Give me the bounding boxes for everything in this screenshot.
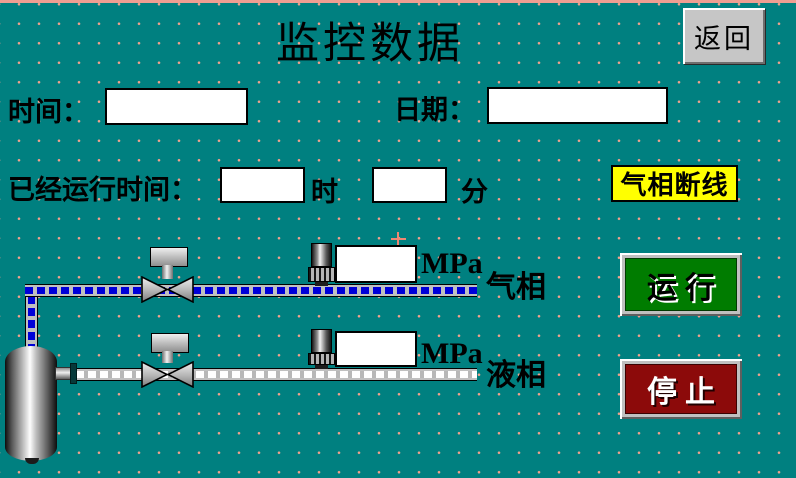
time-value-field[interactable] [105,88,248,125]
liquid-valve-actuator-icon [151,333,189,353]
top-border-line [0,0,796,3]
stop-button[interactable]: 停止 [620,359,742,419]
run-button-face: 运行 [625,258,737,311]
liquid-pressure-unit: MPa [421,337,483,371]
time-label: 时间： [8,90,89,129]
runtime-minutes-field[interactable] [372,167,447,203]
runtime-hours-field[interactable] [220,167,305,203]
runtime-hours-unit: 时 [311,170,338,209]
gas-pressure-display [335,245,417,283]
gas-pressure-unit: MPa [421,247,483,281]
run-button[interactable]: 运行 [620,253,742,316]
gas-phase-label: 气相 [486,262,546,306]
liquid-pressure-transmitter-icon [308,329,335,369]
stop-button-face: 停止 [625,364,737,414]
gas-disconnect-alarm-badge: 气相断线 [611,165,738,202]
page-title: 监控数据 [276,9,464,71]
tank-flange-icon [70,363,77,384]
hmi-monitor-screen: 监控数据 返回 时间： 日期： 已经运行时间： 时 分 气相断线 MPa 气相 [0,0,796,478]
gas-valve-actuator-icon [150,247,188,267]
alarm-label: 气相断线 [620,165,728,202]
back-button[interactable]: 返回 [683,8,765,64]
runtime-minutes-unit: 分 [461,170,488,209]
liquid-phase-label: 液相 [486,350,546,394]
date-value-field[interactable] [487,87,668,124]
date-label: 日期： [394,88,475,127]
liquid-valve-icon [141,361,194,388]
gas-pressure-transmitter-icon [308,243,335,286]
back-button-label: 返回 [694,17,754,56]
gas-pipe-horizontal [25,284,477,297]
tank-drain-icon [25,458,39,464]
tank-icon [5,346,57,461]
gas-valve-icon [141,276,194,303]
liquid-pressure-display [335,331,417,367]
liquid-pipe-horizontal [76,368,477,381]
runtime-label: 已经运行时间： [8,168,197,207]
